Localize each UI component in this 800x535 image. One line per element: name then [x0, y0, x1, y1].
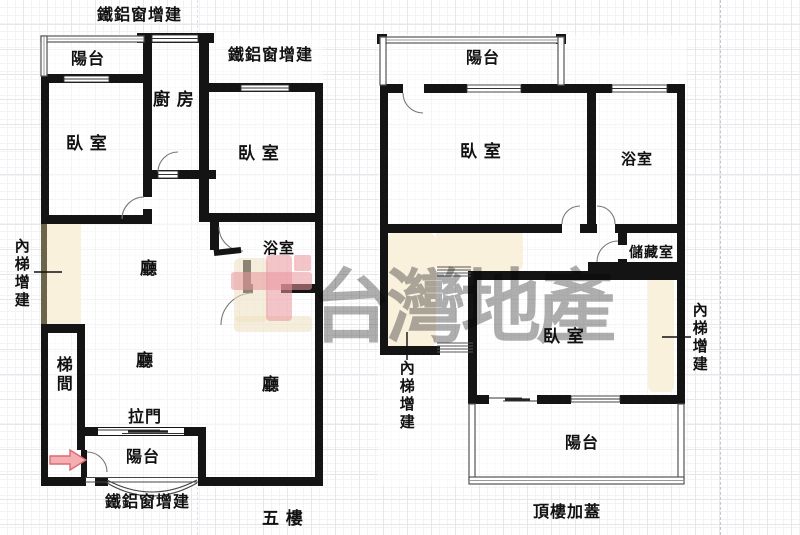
left-stairwell-label: 梯間: [53, 356, 70, 394]
right-balcony-top-label: 陽台: [466, 51, 500, 68]
right-floor-label: 頂樓加蓋: [533, 505, 601, 522]
right-bedroom-bottom-label: 臥 室: [543, 328, 585, 346]
sliding-door-icon: [489, 396, 537, 403]
left-balcony-top-label: 陽台: [71, 52, 105, 69]
left-window-note-bottom: 鐵鋁窗增建: [105, 495, 190, 512]
left-hall-lower-label: 廳: [262, 376, 280, 394]
door-leaf: [214, 250, 241, 253]
left-sliding-door-label: 拉門: [128, 410, 162, 427]
left-inner-stairs-area: [41, 224, 81, 324]
right-balcony-bottom-label: 陽台: [565, 436, 599, 453]
left-bedroom-left-label: 臥 室: [66, 135, 108, 153]
left-window-note-right: 鐵鋁窗增建: [228, 48, 313, 65]
left-window-note-top: 鐵鋁窗增建: [97, 8, 182, 25]
left-balcony-bottom-label: 陽台: [126, 450, 160, 467]
sliding-door-icon: [98, 428, 184, 435]
left-bedroom-right-label: 臥 室: [238, 145, 280, 163]
right-bedroom-top-label: 臥 室: [460, 143, 502, 161]
left-hall-upper-label: 廳: [140, 260, 158, 278]
right-inner-stairs-note-right: 內梯增建: [691, 302, 707, 374]
left-floor-label: 五 樓: [262, 510, 304, 528]
left-hall-middle-label: 廳: [136, 352, 154, 370]
left-bathroom-label: 浴室: [263, 241, 295, 257]
right-inner-stairs-note-left: 內梯增建: [398, 360, 414, 432]
right-storage-label: 儲藏室: [629, 245, 674, 260]
right-bathroom-label: 浴室: [621, 152, 653, 168]
left-kitchen-label: 廚 房: [153, 91, 195, 109]
left-inner-stairs-note: 內梯增建: [13, 238, 29, 310]
